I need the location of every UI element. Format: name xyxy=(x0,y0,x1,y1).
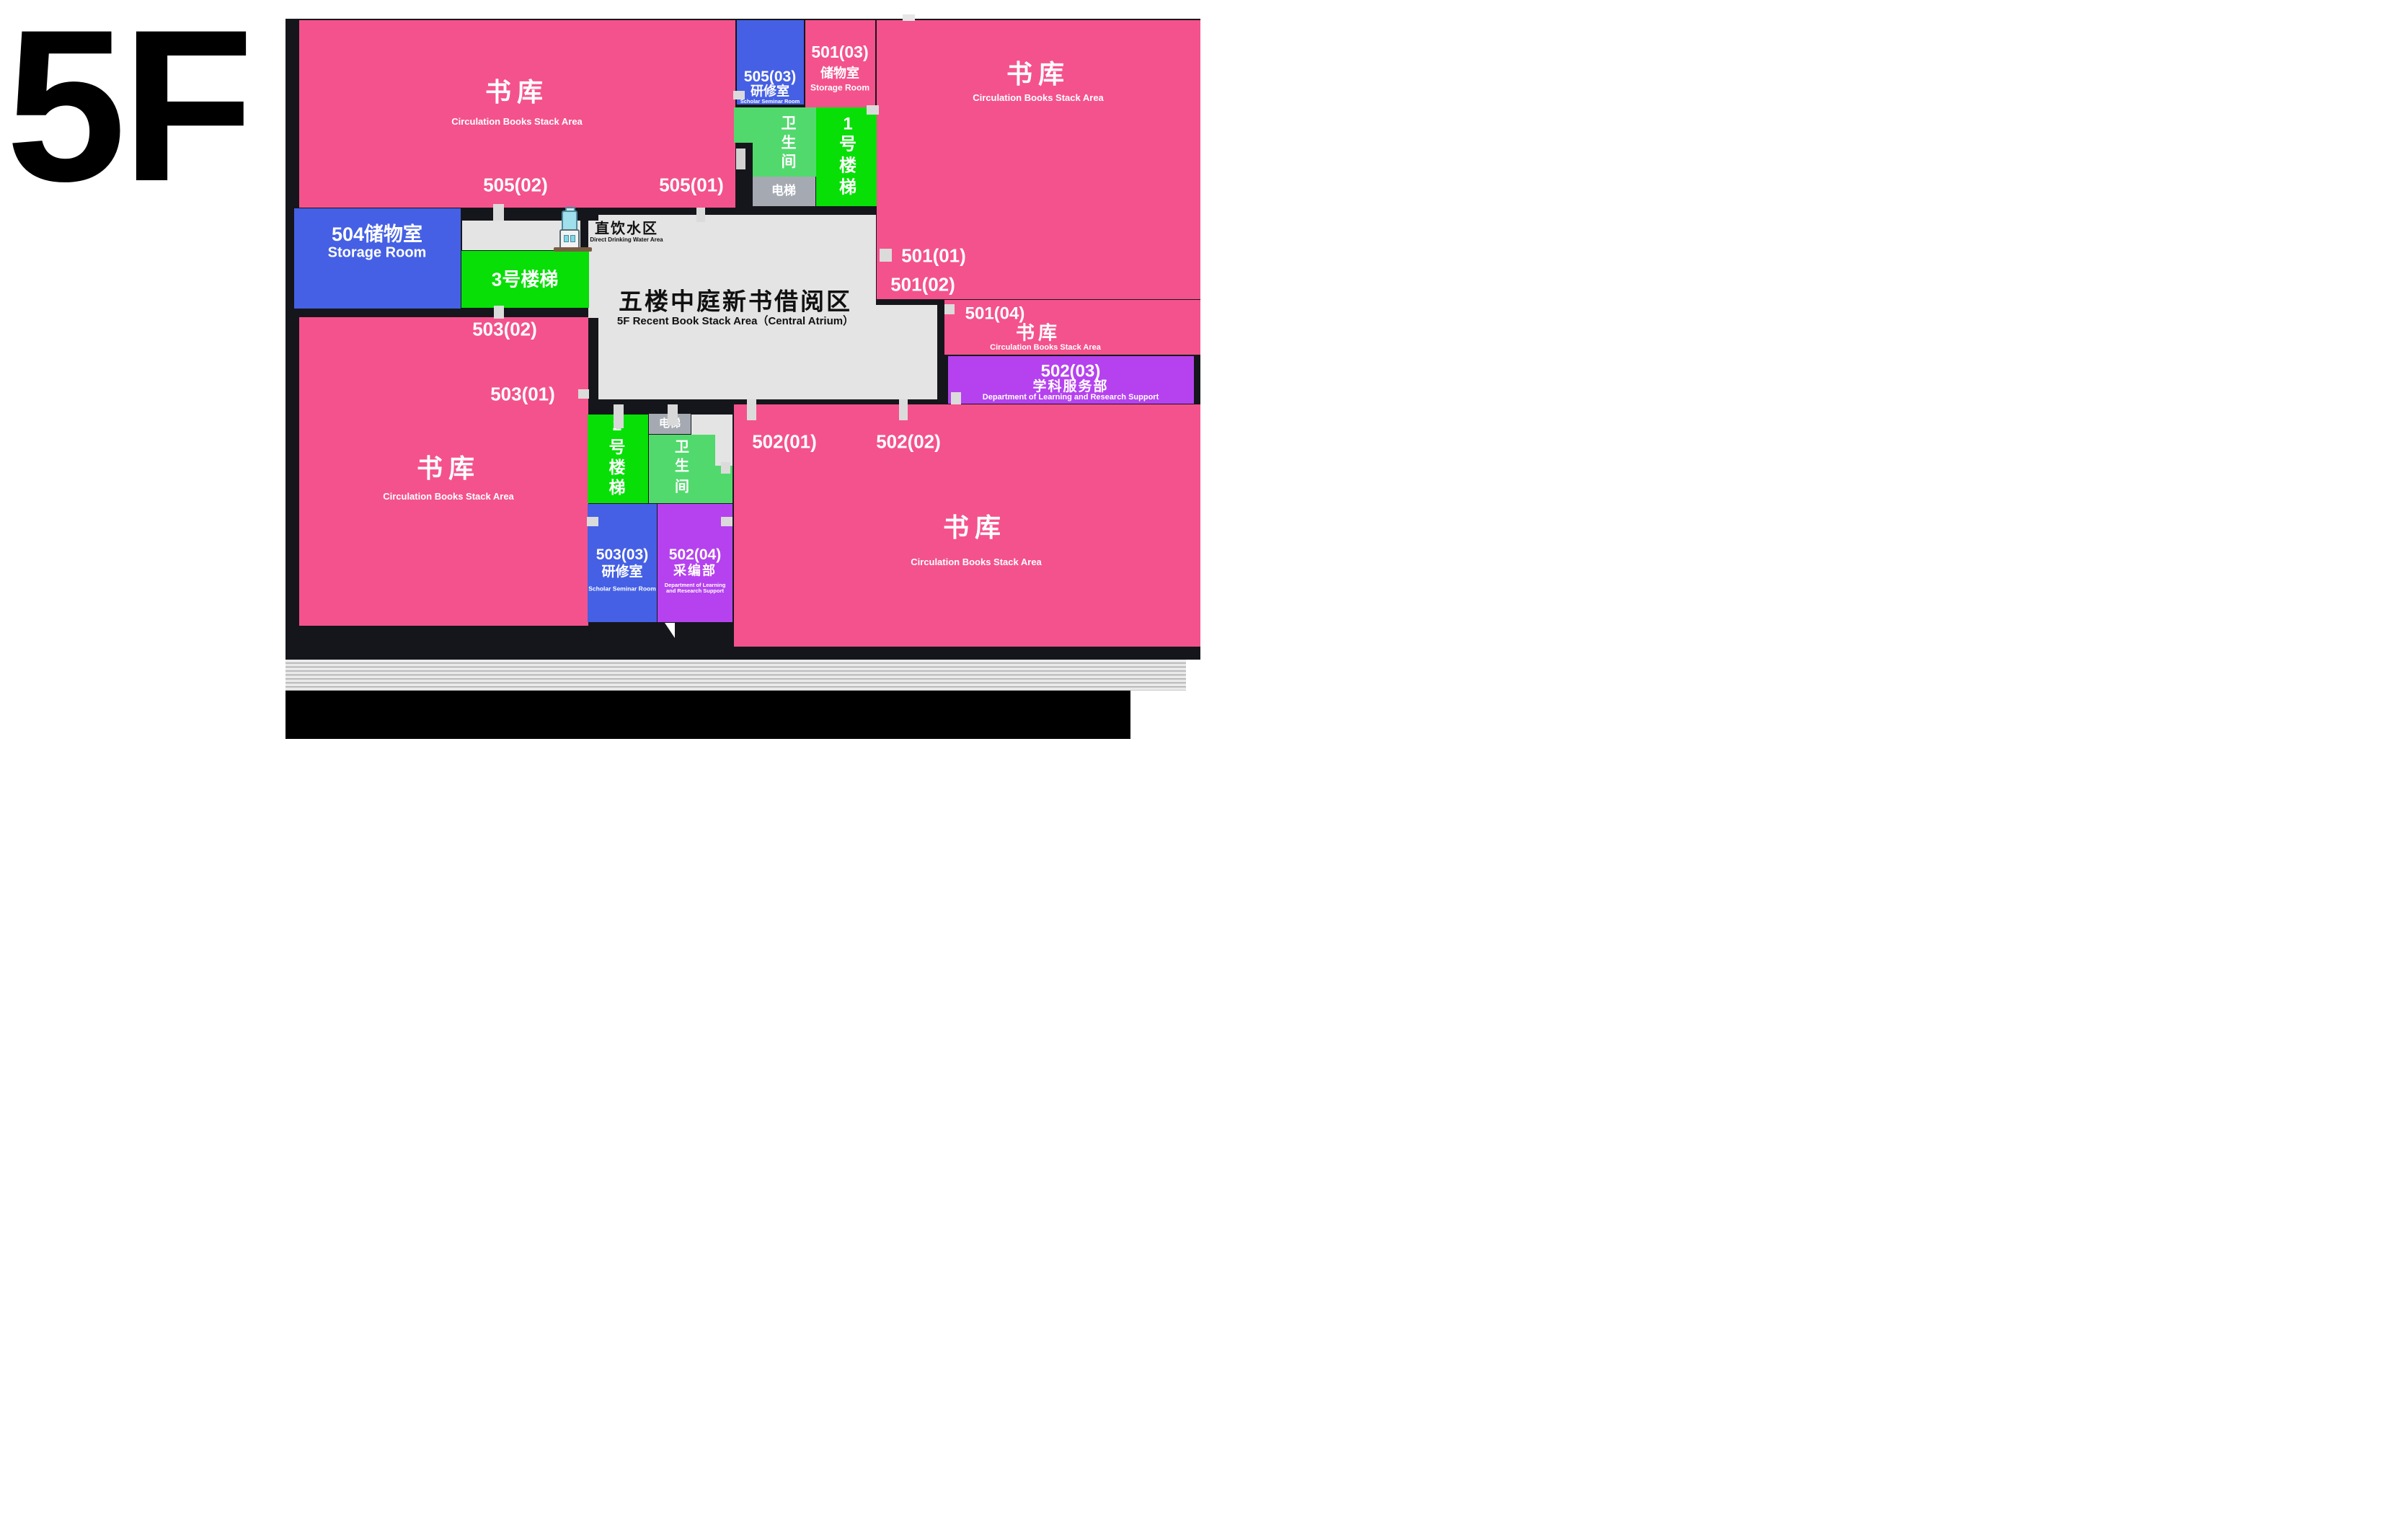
door-mark xyxy=(668,404,678,425)
room-dept-502-03-number: 502(03) xyxy=(1041,362,1101,380)
room-stack-501-04-subtitle: Circulation Books Stack Area xyxy=(990,344,1101,353)
elevator-north-label: 电梯 xyxy=(771,185,796,198)
floor-label: 5F xyxy=(6,0,249,213)
room-seminar-505: 505(03) 研修室 Scholar Seminar Room xyxy=(737,20,804,105)
door-label-501-04: 501(04) xyxy=(965,304,1025,322)
room-seminar-503-title: 研修室 xyxy=(601,565,642,580)
door-mark xyxy=(614,404,624,428)
stair-1-char-4: 梯 xyxy=(839,178,856,196)
toilet-south-lower xyxy=(649,466,732,503)
door-label-501-02: 501(02) xyxy=(890,275,955,294)
door-label-503-02: 503(02) xyxy=(472,319,537,339)
door-mark xyxy=(880,249,892,262)
room-storage-504: 504储物室 Storage Room xyxy=(294,208,461,309)
room-stack-ne: 书库 Circulation Books Stack Area 501(01) … xyxy=(877,20,1200,299)
toilet-south-char-1: 卫 xyxy=(675,440,689,456)
room-stack-ne-title: 书库 xyxy=(1006,61,1070,88)
toilet-north-char-1: 卫 xyxy=(782,116,797,132)
room-stack-se-subtitle: Circulation Books Stack Area xyxy=(911,557,1042,567)
floor-plan-5f: 5F 书库 Circulation Books Stack Area 505(0… xyxy=(0,0,1204,765)
door-mark xyxy=(493,204,504,221)
toilet-north-upper xyxy=(734,107,816,143)
toilet-south-char-3: 间 xyxy=(675,480,689,495)
stair-3-label: 3号楼梯 xyxy=(492,270,558,289)
stair-2-char-4: 梯 xyxy=(609,479,626,496)
stair-2-char-3: 楼 xyxy=(609,458,626,476)
door-label-503-01: 503(01) xyxy=(490,384,555,404)
room-storage-501-title: 储物室 xyxy=(820,67,859,81)
stair-1-char-1: 1 xyxy=(843,115,852,133)
door-mark xyxy=(951,392,961,404)
room-seminar-505-title: 研修室 xyxy=(751,85,789,99)
door-label-502-01: 502(01) xyxy=(752,432,817,451)
door-label-502-02: 502(02) xyxy=(876,432,941,451)
room-stack-ne-subtitle: Circulation Books Stack Area xyxy=(973,93,1104,103)
room-toilet-north: 卫 生 间 xyxy=(734,107,816,177)
room-stack-501-04: 501(04) 书库 Circulation Books Stack Area xyxy=(944,300,1200,355)
door-mark xyxy=(578,389,589,399)
room-storage-504-title: 504储物室 xyxy=(332,224,422,244)
room-storage-504-subtitle: Storage Room xyxy=(328,246,427,261)
room-stack-se: 502(01) 502(02) 书库 Circulation Books Sta… xyxy=(734,404,1200,647)
room-storage-501-subtitle: Storage Room xyxy=(810,84,869,93)
toilet-north-char-2: 生 xyxy=(782,136,797,151)
toilet-south-char-2: 生 xyxy=(675,459,689,474)
water-area-title: 直饮水区 xyxy=(595,222,658,237)
door-mark xyxy=(903,14,915,21)
room-seminar-505-subtitle: Scholar Seminar Room xyxy=(740,99,800,105)
door-mark xyxy=(494,306,504,319)
stair-1-char-3: 楼 xyxy=(839,156,856,174)
atrium-right-extension xyxy=(876,305,937,399)
room-stack-sw-title: 书库 xyxy=(417,455,480,482)
room-stack-sw: 503(02) 503(01) 书库 Circulation Books Sta… xyxy=(299,317,588,626)
bottom-black-bar xyxy=(285,691,1130,739)
door-mark xyxy=(944,304,955,314)
room-toilet-south: 卫 生 间 xyxy=(649,435,732,503)
door-label-501-01: 501(01) xyxy=(901,246,966,265)
door-mark xyxy=(721,462,730,474)
room-stack-sw-subtitle: Circulation Books Stack Area xyxy=(383,492,514,502)
water-area-subtitle: Direct Drinking Water Area xyxy=(590,237,663,243)
room-stair-1: 1 号 楼 梯 xyxy=(816,107,880,206)
door-mark xyxy=(736,149,745,169)
door-mark xyxy=(733,91,745,99)
room-stack-se-title: 书库 xyxy=(943,514,1006,541)
room-stack-nw-title: 书库 xyxy=(485,79,549,106)
room-storage-501-number: 501(03) xyxy=(811,43,868,61)
door-mark xyxy=(587,517,598,526)
room-dept-502-03: 502(03) 学科服务部 Department of Learning and… xyxy=(948,356,1194,404)
room-dept-502-03-title: 学科服务部 xyxy=(1032,380,1108,394)
room-stair-3: 3号楼梯 xyxy=(461,251,589,308)
door-mark xyxy=(867,105,879,115)
wall-notch xyxy=(665,623,675,638)
stair-1-char-2: 号 xyxy=(839,135,856,153)
room-elevator-north: 电梯 xyxy=(753,177,815,206)
room-seminar-505-number: 505(03) xyxy=(744,69,796,85)
door-mark xyxy=(899,399,908,420)
room-dept-502-04-title: 采编部 xyxy=(673,564,717,578)
atrium-subtitle: 5F Recent Book Stack Area（Central Atrium… xyxy=(617,316,854,327)
door-label-505-02: 505(02) xyxy=(483,175,548,195)
room-dept-502-04-number: 502(04) xyxy=(669,547,721,563)
bottom-hatch-area xyxy=(285,660,1186,691)
room-dept-502-03-subtitle: Department of Learning and Research Supp… xyxy=(983,394,1159,402)
door-label-505-01: 505(01) xyxy=(659,175,724,195)
room-seminar-503-subtitle: Scholar Seminar Room xyxy=(588,586,656,593)
room-stack-nw-subtitle: Circulation Books Stack Area xyxy=(451,117,583,127)
stair-2-char-2: 号 xyxy=(609,438,626,456)
door-mark xyxy=(696,208,705,222)
door-mark xyxy=(721,517,732,526)
room-stack-nw: 书库 Circulation Books Stack Area 505(02) … xyxy=(299,20,735,208)
room-dept-502-04-subtitle-2: and Research Support xyxy=(666,588,724,594)
room-seminar-503-number: 503(03) xyxy=(596,547,648,563)
door-mark xyxy=(747,399,756,420)
toilet-north-char-3: 间 xyxy=(782,154,797,170)
atrium-title: 五楼中庭新书借阅区 xyxy=(619,290,852,315)
room-stack-501-04-title: 书库 xyxy=(1016,323,1061,342)
